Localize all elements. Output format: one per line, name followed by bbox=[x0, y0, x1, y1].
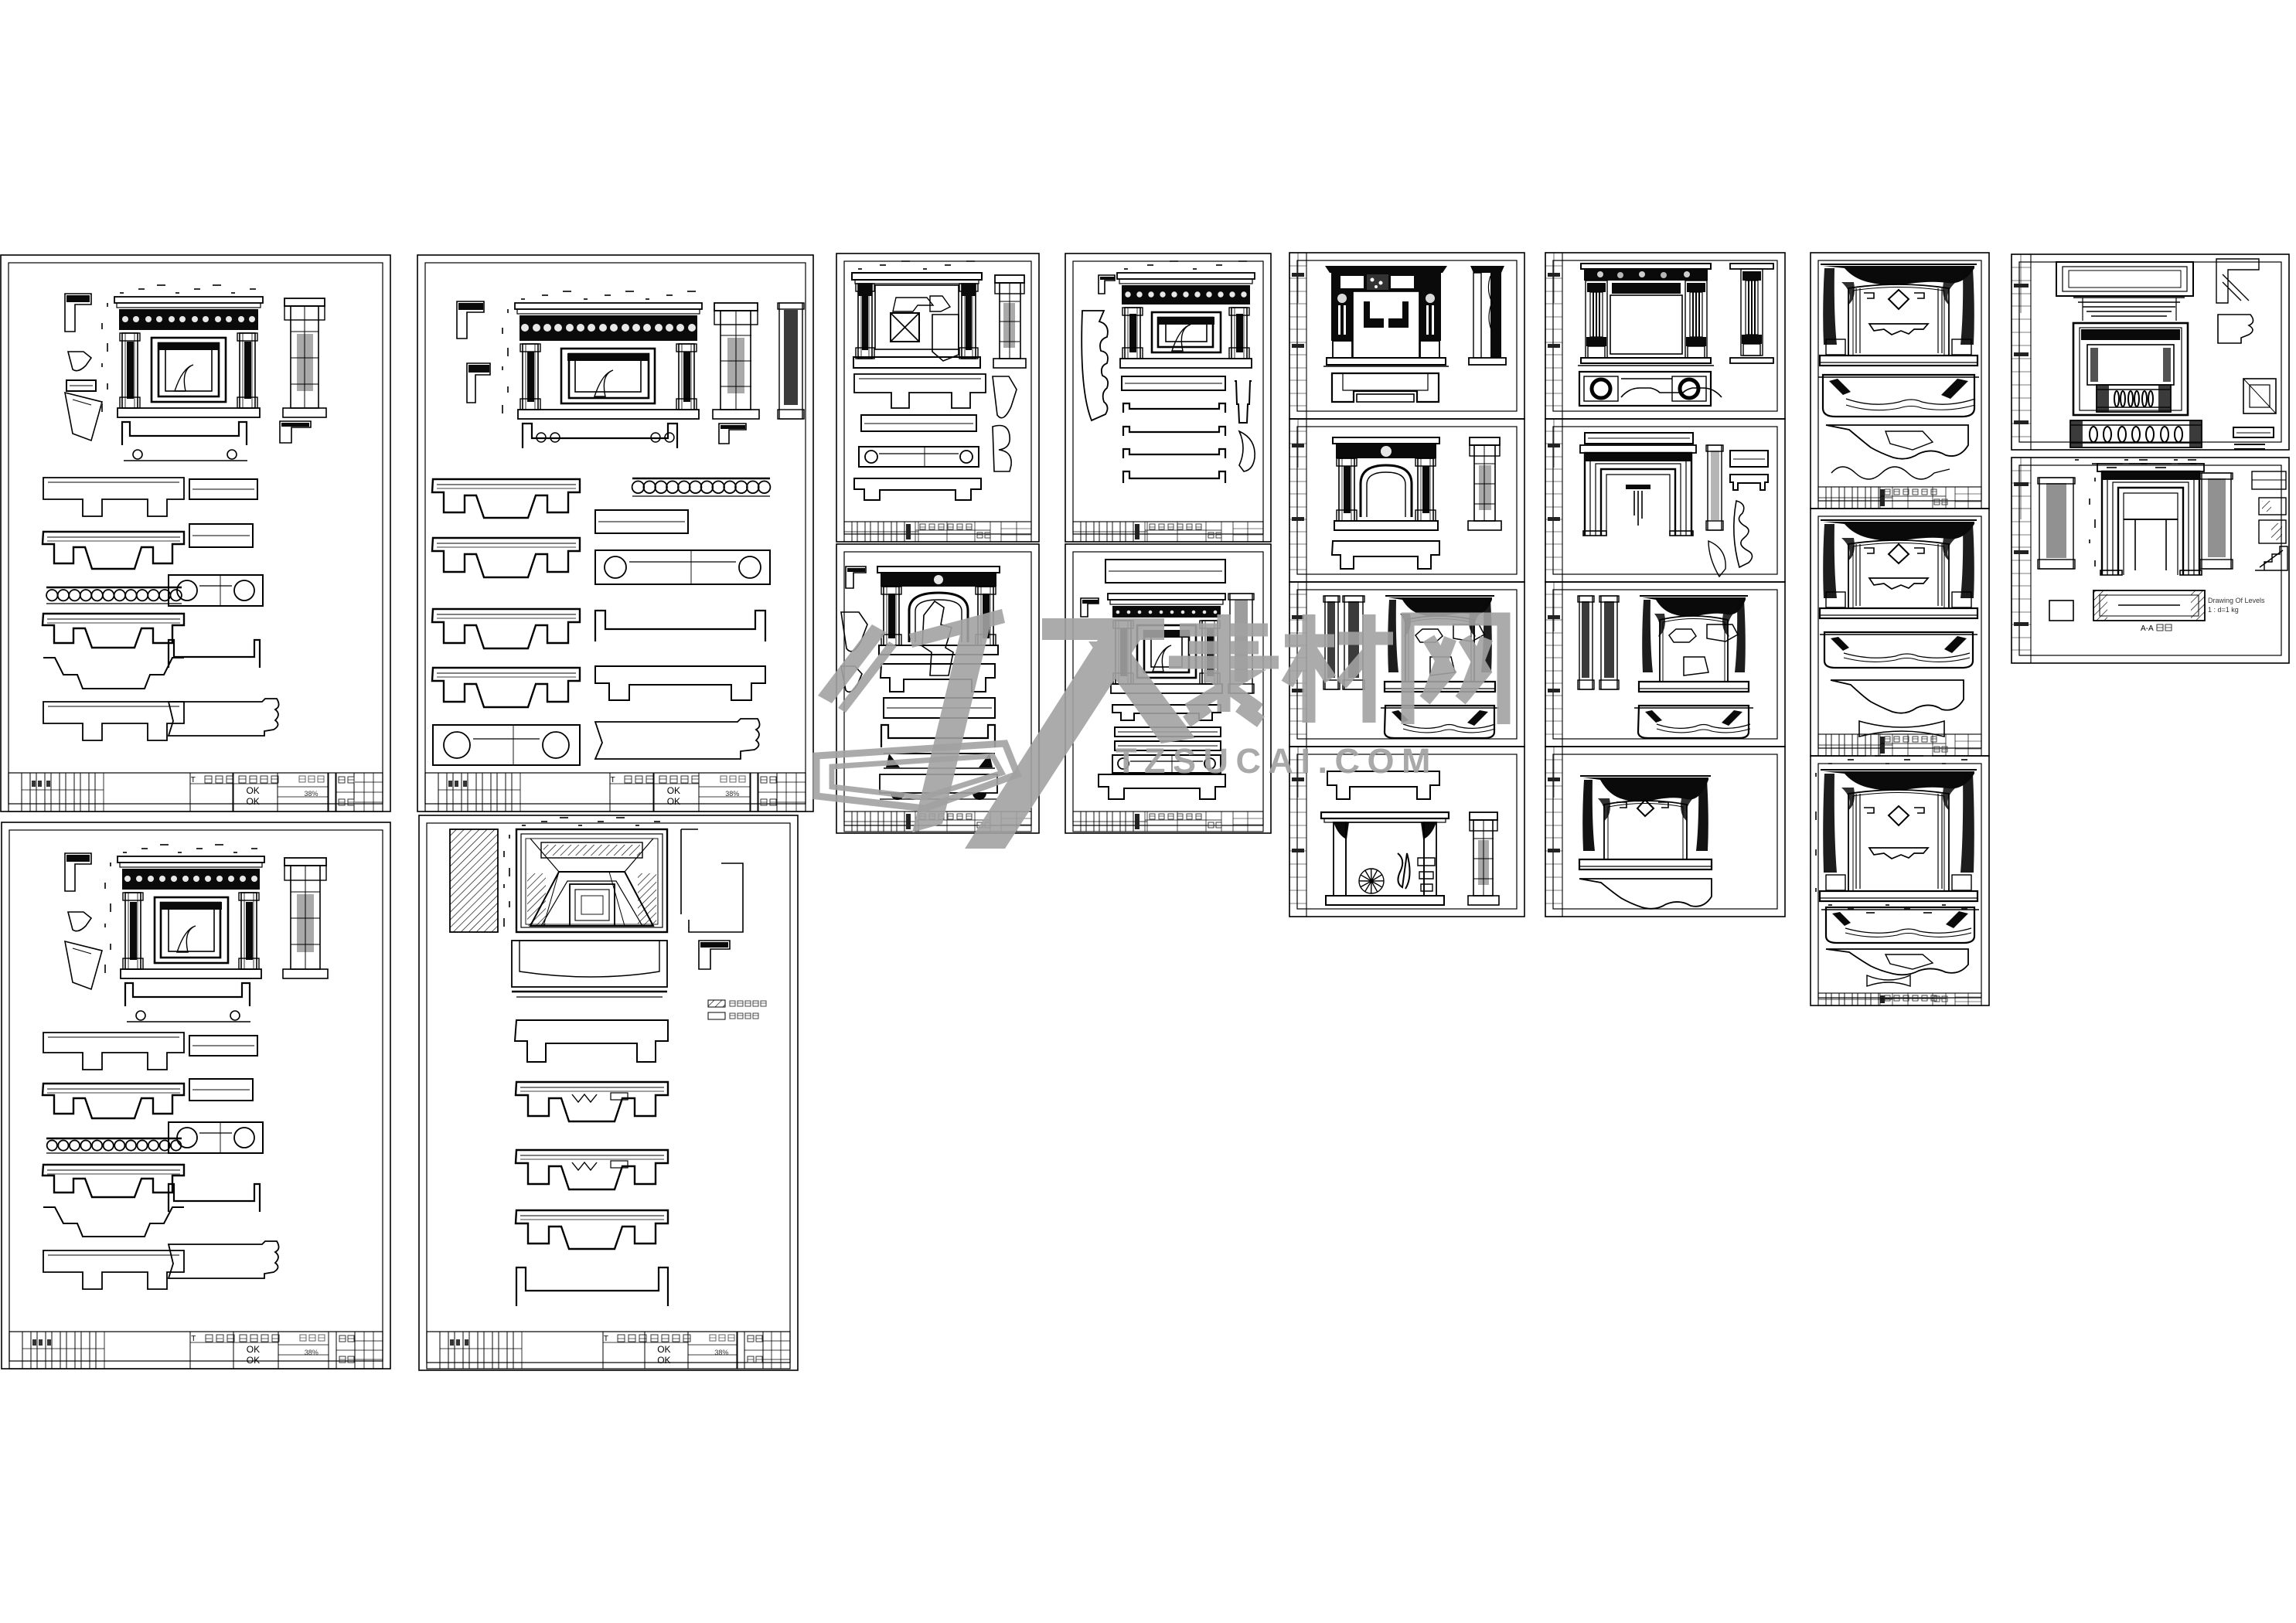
svg-text:38%: 38% bbox=[714, 1349, 728, 1356]
svg-text:OK: OK bbox=[246, 785, 259, 796]
svg-text:OK: OK bbox=[246, 796, 259, 807]
svg-text:OK: OK bbox=[667, 785, 680, 796]
svg-text:TZSUCAI.COM: TZSUCAI.COM bbox=[1116, 741, 1438, 781]
svg-text:OK: OK bbox=[657, 1344, 670, 1355]
svg-text:1 : d=1 kg: 1 : d=1 kg bbox=[2208, 606, 2239, 614]
svg-text:T: T bbox=[604, 1335, 608, 1343]
svg-text:OK: OK bbox=[657, 1355, 670, 1366]
svg-text:OK: OK bbox=[667, 796, 680, 807]
svg-text:38%: 38% bbox=[725, 790, 739, 798]
svg-text:T: T bbox=[191, 776, 196, 784]
svg-text:T: T bbox=[191, 1335, 196, 1343]
svg-text:Drawing Of Levels: Drawing Of Levels bbox=[2208, 597, 2265, 604]
svg-text:A-A: A-A bbox=[2141, 624, 2154, 633]
svg-text:38%: 38% bbox=[304, 790, 318, 798]
svg-text:OK: OK bbox=[247, 1344, 260, 1355]
svg-text:38%: 38% bbox=[305, 1349, 319, 1356]
svg-text:T: T bbox=[611, 776, 615, 784]
svg-text:OK: OK bbox=[247, 1355, 260, 1366]
